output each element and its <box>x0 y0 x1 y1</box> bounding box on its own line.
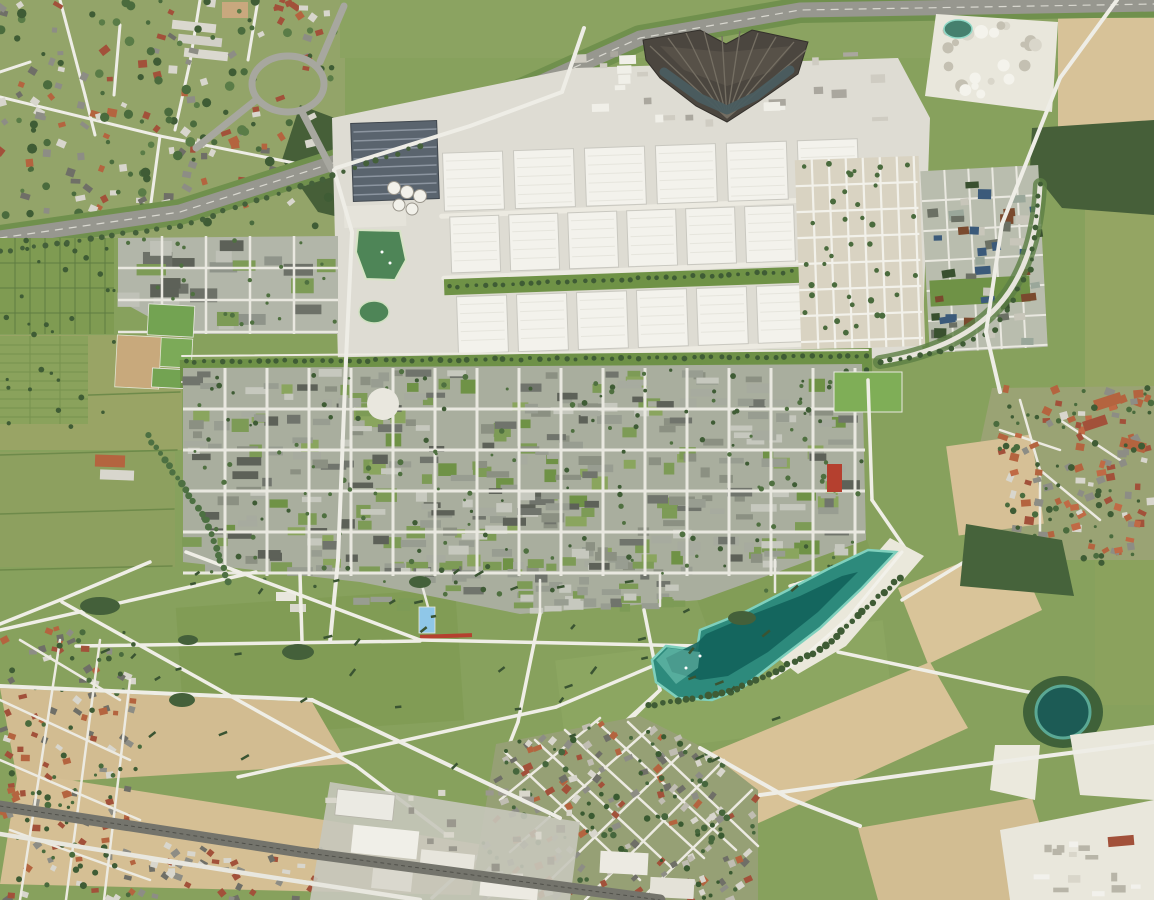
aerial-photo-canvas <box>0 0 1154 900</box>
east-parking-grid <box>795 156 926 350</box>
gravel-works-north <box>925 14 1058 112</box>
aerial-photo-messestadt <box>0 0 1154 900</box>
